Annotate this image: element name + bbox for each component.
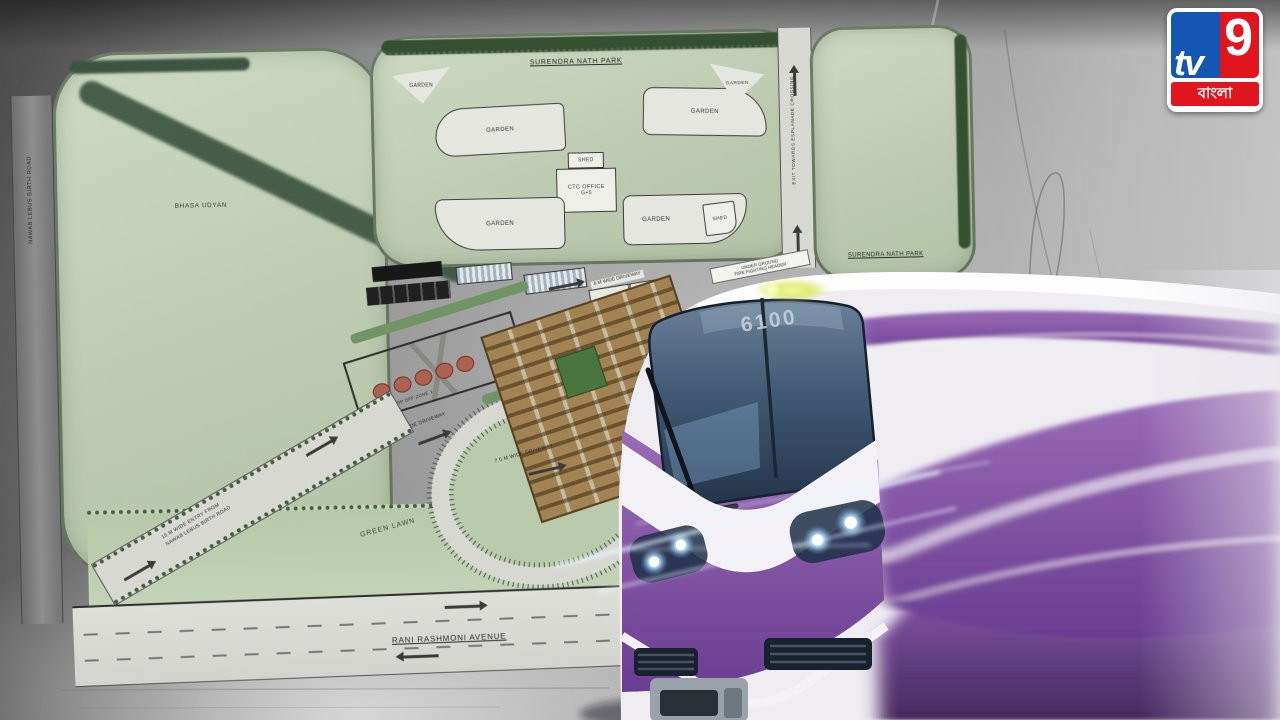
logo-banner: বাংলা [1171,82,1259,106]
roof-beacon-glow [754,279,830,301]
roof-beacon [766,283,778,295]
logo-face: tv 9 [1171,12,1259,78]
logo-card: tv 9 বাংলা [1167,8,1263,112]
logo-nine-text: 9 [1224,12,1253,68]
metro-train: 6100 [0,0,1280,720]
coupler [650,678,748,720]
logo-tv-text: tv [1174,42,1202,78]
motion-fade [1140,270,1280,720]
tv9-bangla-logo: tv 9 বাংলা [1167,8,1267,112]
news-graphic: NAWAB LEBUS BIRTH ROAD BHASA UDYAN SUREN… [0,0,1280,720]
